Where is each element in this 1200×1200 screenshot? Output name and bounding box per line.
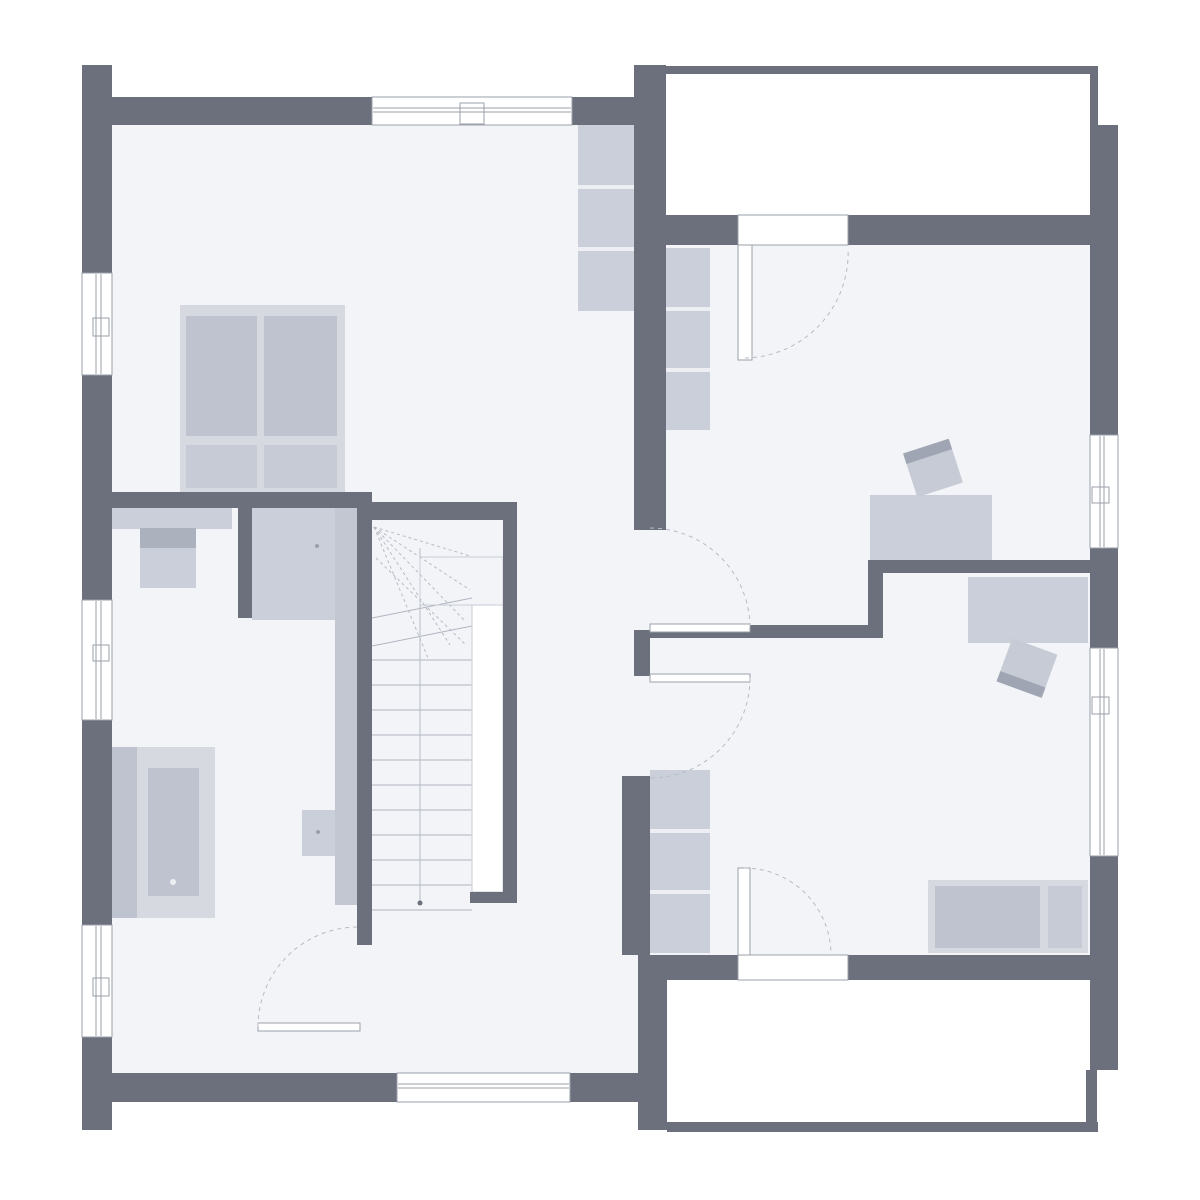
wall-divider-stair-top	[357, 502, 517, 520]
shelf-upper-right-room	[666, 248, 710, 430]
bed-double-mattress-right	[264, 316, 337, 436]
door-leaf-balcony	[738, 245, 752, 360]
wall-door-stub	[634, 630, 650, 676]
window-west-1	[82, 273, 112, 375]
wall-south-b	[848, 955, 1090, 980]
door-opening-balcony-top	[738, 215, 848, 245]
window-north	[372, 97, 572, 125]
door-leaf-hall-lower	[650, 674, 750, 682]
shower-drain-dot	[315, 544, 319, 548]
desk-upper	[870, 495, 992, 560]
wall-east-3	[1090, 856, 1118, 1070]
wall-divider-bedroom-bath	[112, 492, 372, 508]
door-leaf-south-bedroom	[738, 868, 750, 955]
window-west-2	[82, 600, 112, 720]
shelf-lower-right-room	[650, 770, 710, 953]
wall-se-balcony-left	[638, 955, 667, 1130]
parapet-balcony-top-right	[1090, 66, 1098, 127]
wall-left-bottom	[82, 1037, 112, 1130]
toilet-dot	[316, 830, 320, 834]
floor-balcony-bottom	[667, 980, 1086, 1122]
bath-sink-top	[140, 528, 196, 548]
door-leaf-hall-upper	[650, 624, 750, 632]
bed-double-pillow-left	[186, 445, 257, 488]
wall-center-lower	[622, 776, 650, 955]
parapet-se-balcony-bottom	[667, 1122, 1098, 1132]
wall-under-balcony-a	[666, 215, 738, 245]
desk-lower	[968, 577, 1088, 643]
bed-single-pillow	[1048, 886, 1082, 948]
wall-east-2	[1090, 548, 1118, 648]
wall-top-a	[112, 97, 372, 125]
wall-top-b	[572, 97, 640, 125]
wall-center	[634, 65, 666, 530]
door-leaf-bathroom	[258, 1023, 360, 1031]
bath-shower	[252, 508, 335, 620]
floor-plan	[0, 0, 1200, 1200]
wall-left-mid2	[82, 720, 112, 925]
wall-east-1	[1090, 125, 1118, 435]
stair-walk-line-dot	[418, 901, 423, 906]
wall-stair-stub	[470, 892, 517, 903]
bathtub-side-strip	[112, 747, 137, 918]
bed-single-mattress	[935, 886, 1040, 948]
wall-bottom-b	[570, 1073, 650, 1102]
door-opening-south	[738, 955, 848, 980]
bath-plumbing-wall	[335, 508, 357, 905]
stair-void	[472, 605, 503, 892]
parapet-balcony-top	[666, 66, 1098, 74]
bed-double-pillow-right	[264, 445, 337, 488]
wall-bath-interior	[238, 507, 252, 618]
wall-left-top	[82, 65, 112, 273]
bath-counter	[112, 507, 232, 529]
wall-bottom-a	[112, 1073, 397, 1102]
bathtub-drain	[170, 879, 176, 885]
wall-zigzag-upper	[868, 560, 1090, 573]
floor-balcony-top	[666, 74, 1090, 215]
window-west-3	[82, 925, 112, 1037]
floor-plan-canvas	[0, 0, 1200, 1200]
wall-stair-right	[503, 520, 517, 892]
wall-left-mid1	[82, 375, 112, 600]
bed-double-mattress-left	[186, 316, 257, 436]
wardrobe-top-left	[578, 125, 634, 311]
parapet-se-balcony-right	[1086, 1070, 1097, 1132]
wall-bath-stair	[357, 520, 372, 945]
wall-under-balcony-b	[848, 215, 1090, 245]
bathtub-basin	[148, 768, 199, 896]
